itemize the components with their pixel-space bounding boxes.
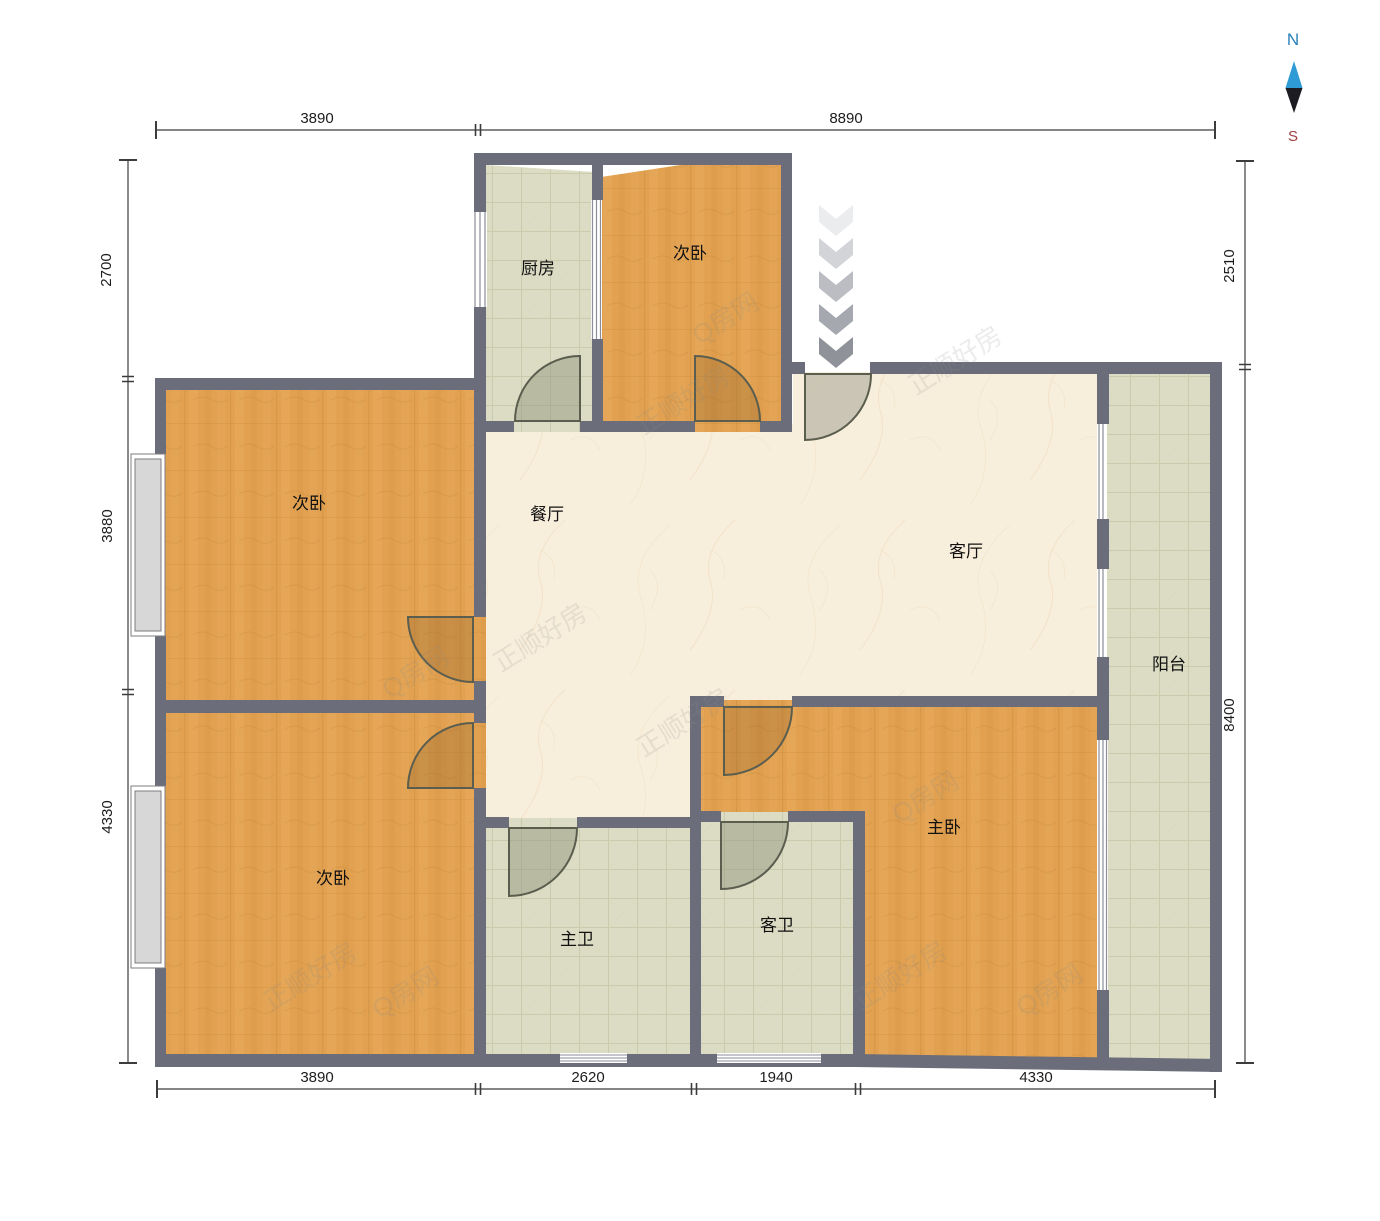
- svg-text:餐厅: 餐厅: [530, 505, 564, 524]
- svg-text:8890: 8890: [829, 110, 862, 127]
- svg-text:2700: 2700: [98, 253, 115, 286]
- svg-text:4330: 4330: [99, 800, 116, 833]
- svg-text:阳台: 阳台: [1152, 655, 1186, 674]
- svg-text:主卧: 主卧: [927, 818, 961, 837]
- svg-text:次卧: 次卧: [316, 869, 350, 888]
- svg-text:3890: 3890: [300, 110, 333, 127]
- svg-text:2620: 2620: [571, 1069, 604, 1086]
- svg-text:2510: 2510: [1221, 249, 1238, 282]
- svg-text:厨房: 厨房: [521, 259, 555, 278]
- svg-text:3880: 3880: [99, 509, 116, 542]
- svg-text:次卧: 次卧: [292, 494, 326, 513]
- svg-text:8400: 8400: [1221, 698, 1238, 731]
- svg-text:次卧: 次卧: [673, 244, 707, 263]
- svg-text:3890: 3890: [300, 1069, 333, 1086]
- svg-text:客厅: 客厅: [949, 542, 983, 561]
- svg-text:4330: 4330: [1019, 1069, 1052, 1086]
- svg-text:客卫: 客卫: [760, 916, 794, 935]
- svg-text:1940: 1940: [759, 1069, 792, 1086]
- svg-text:S: S: [1288, 128, 1298, 145]
- svg-text:N: N: [1287, 30, 1299, 49]
- svg-text:主卫: 主卫: [560, 930, 594, 949]
